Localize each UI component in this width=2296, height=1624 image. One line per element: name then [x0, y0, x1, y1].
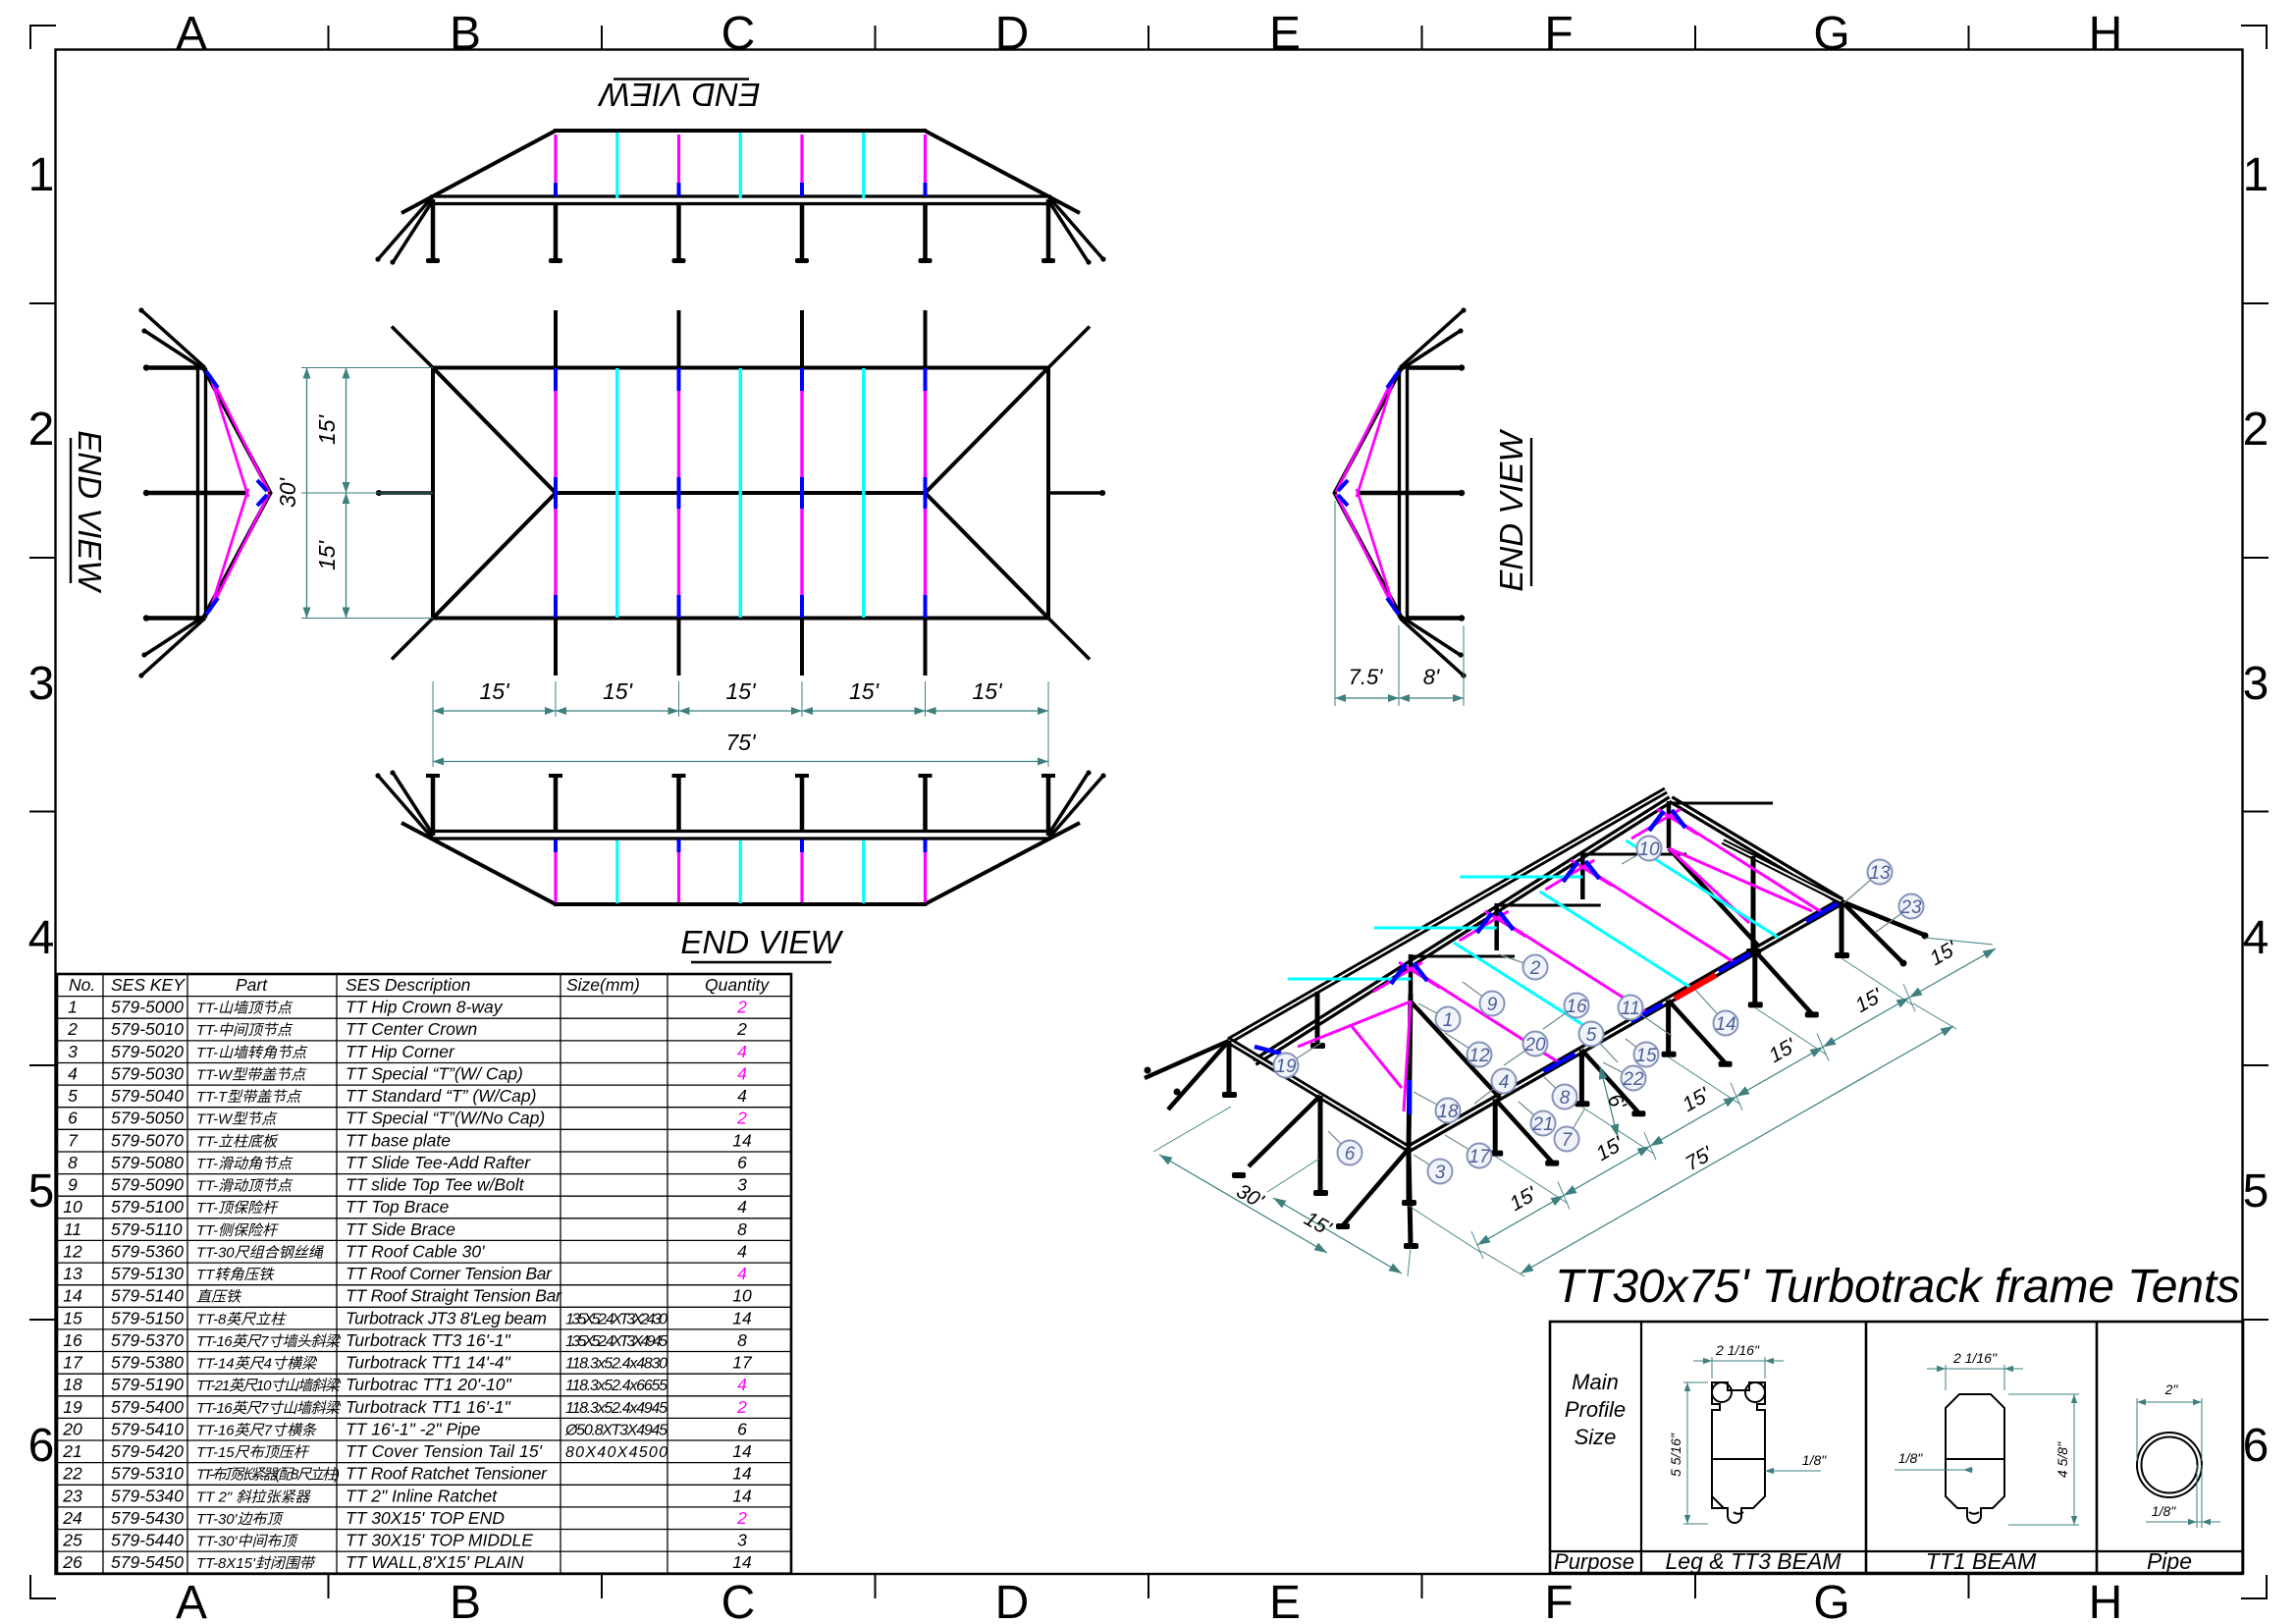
- svg-text:579-5340: 579-5340: [111, 1486, 184, 1505]
- svg-text:9: 9: [1487, 995, 1498, 1015]
- svg-text:TT Slide Tee-Add Rafter: TT Slide Tee-Add Rafter: [346, 1153, 531, 1172]
- svg-text:2 1/16": 2 1/16": [1952, 1350, 1998, 1366]
- svg-text:15': 15': [314, 413, 340, 445]
- svg-text:579-5090: 579-5090: [111, 1175, 184, 1195]
- svg-text:No.: No.: [69, 975, 95, 995]
- svg-text:579-5190: 579-5190: [111, 1375, 184, 1394]
- svg-text:80X40X4500: 80X40X4500: [565, 1444, 667, 1461]
- svg-text:18: 18: [1437, 1102, 1459, 1122]
- svg-text:Pipe: Pipe: [2147, 1548, 2192, 1574]
- svg-text:END VIEW: END VIEW: [72, 430, 108, 593]
- svg-text:Purpose: Purpose: [1554, 1549, 1634, 1574]
- svg-text:5: 5: [28, 1165, 55, 1218]
- svg-text:15': 15': [973, 678, 1004, 704]
- svg-text:2: 2: [67, 1019, 78, 1039]
- svg-text:H: H: [2089, 1577, 2123, 1624]
- svg-text:TT Roof Ratchet Tensioner: TT Roof Ratchet Tensioner: [346, 1464, 548, 1484]
- svg-text:118.3x52.4x4830: 118.3x52.4x4830: [565, 1356, 667, 1373]
- svg-text:17: 17: [1468, 1147, 1491, 1167]
- svg-text:4: 4: [737, 1042, 747, 1061]
- svg-text:TT-侧保险杆: TT-侧保险杆: [196, 1222, 279, 1239]
- svg-text:TT-30'边布顶: TT-30'边布顶: [196, 1511, 284, 1528]
- svg-text:15': 15': [726, 678, 758, 704]
- svg-text:TT Roof Straight Tension Bar: TT Roof Straight Tension Bar: [346, 1286, 562, 1306]
- svg-text:1: 1: [1443, 1010, 1454, 1031]
- svg-text:3: 3: [737, 1175, 747, 1195]
- svg-text:579-5080: 579-5080: [111, 1153, 184, 1172]
- svg-text:16: 16: [1566, 997, 1587, 1017]
- svg-text:21: 21: [1531, 1114, 1553, 1135]
- svg-text:14: 14: [732, 1552, 752, 1572]
- svg-text:A: A: [176, 8, 207, 60]
- svg-text:579-5010: 579-5010: [111, 1019, 184, 1039]
- svg-text:12: 12: [1468, 1046, 1490, 1066]
- svg-text:2: 2: [736, 1508, 747, 1528]
- svg-text:5 5/16": 5 5/16": [1668, 1433, 1683, 1477]
- svg-text:Quantity: Quantity: [705, 975, 770, 995]
- svg-text:TT-顶保险杆: TT-顶保险杆: [196, 1200, 279, 1217]
- svg-text:9: 9: [68, 1175, 78, 1195]
- svg-text:2: 2: [2243, 404, 2269, 456]
- svg-text:26: 26: [62, 1552, 82, 1572]
- svg-text:TT Special “T”(W/ Cap): TT Special “T”(W/ Cap): [346, 1064, 523, 1084]
- svg-text:4: 4: [737, 1197, 747, 1217]
- svg-text:579-5030: 579-5030: [111, 1064, 184, 1084]
- svg-text:579-5140: 579-5140: [111, 1286, 184, 1306]
- svg-text:4: 4: [737, 1241, 747, 1261]
- svg-text:4: 4: [68, 1064, 78, 1084]
- svg-text:6: 6: [737, 1153, 747, 1172]
- svg-text:Part: Part: [236, 975, 268, 995]
- svg-text:TT转角压铁: TT转角压铁: [196, 1267, 275, 1283]
- svg-text:3: 3: [1435, 1163, 1446, 1183]
- svg-text:TT-16英尺7寸横条: TT-16英尺7寸横条: [196, 1422, 317, 1438]
- svg-text:14: 14: [732, 1486, 752, 1505]
- svg-text:7.5': 7.5': [1349, 665, 1384, 689]
- svg-text:TT-立柱底板: TT-立柱底板: [196, 1133, 279, 1150]
- svg-text:2: 2: [736, 1019, 747, 1039]
- svg-text:118.3x52.4x6655: 118.3x52.4x6655: [565, 1378, 667, 1394]
- svg-text:TT-T型带盖节点: TT-T型带盖节点: [196, 1089, 302, 1106]
- svg-text:5: 5: [1586, 1025, 1597, 1046]
- svg-text:TT 16'-1" -2" Pipe: TT 16'-1" -2" Pipe: [346, 1419, 481, 1438]
- svg-text:5: 5: [2243, 1165, 2269, 1218]
- svg-text:13: 13: [1869, 863, 1891, 884]
- svg-text:21: 21: [62, 1441, 81, 1461]
- svg-text:TT-滑动顶节点: TT-滑动顶节点: [196, 1178, 294, 1195]
- svg-text:1/8": 1/8": [1898, 1450, 1923, 1466]
- svg-text:6: 6: [68, 1109, 78, 1128]
- svg-text:Turbotrack JT3 8'Leg beam: Turbotrack JT3 8'Leg beam: [346, 1308, 547, 1327]
- svg-text:4: 4: [1499, 1072, 1510, 1093]
- svg-text:579-5130: 579-5130: [111, 1264, 184, 1283]
- svg-text:TT-16英尺7寸墙头斜梁: TT-16英尺7寸墙头斜梁: [196, 1333, 342, 1350]
- svg-text:11: 11: [64, 1219, 81, 1239]
- svg-text:TT30x75' Turbotrack frame Tent: TT30x75' Turbotrack frame Tents: [1555, 1261, 2240, 1313]
- svg-text:TT 30X15' TOP MIDDLE: TT 30X15' TOP MIDDLE: [346, 1531, 533, 1550]
- svg-text:15: 15: [1635, 1046, 1657, 1066]
- svg-text:END VIEW: END VIEW: [598, 77, 761, 113]
- svg-text:15': 15': [849, 678, 881, 704]
- svg-text:17: 17: [732, 1353, 753, 1373]
- svg-text:TT-8X15'封闭围带: TT-8X15'封闭围带: [196, 1555, 316, 1572]
- svg-text:TT Top Brace: TT Top Brace: [346, 1197, 450, 1217]
- svg-text:2: 2: [1529, 958, 1541, 979]
- svg-text:TT-滑动角节点: TT-滑动角节点: [196, 1156, 294, 1172]
- svg-text:10: 10: [63, 1197, 82, 1217]
- svg-text:8: 8: [737, 1330, 747, 1350]
- svg-text:4: 4: [737, 1375, 747, 1394]
- svg-text:2 1/16": 2 1/16": [1715, 1342, 1760, 1358]
- svg-text:TT Standard “T” (W/Cap): TT Standard “T” (W/Cap): [346, 1086, 536, 1106]
- svg-text:15: 15: [63, 1308, 82, 1327]
- svg-text:15': 15': [603, 678, 634, 704]
- svg-text:7: 7: [1562, 1130, 1574, 1151]
- svg-text:579-5420: 579-5420: [111, 1441, 184, 1461]
- svg-text:A: A: [176, 1577, 207, 1624]
- svg-text:3: 3: [737, 1531, 747, 1550]
- svg-text:135X52.4XT3X4945: 135X52.4XT3X4945: [565, 1333, 667, 1350]
- svg-text:TT-中间顶节点: TT-中间顶节点: [196, 1022, 294, 1039]
- svg-text:2: 2: [736, 1109, 747, 1128]
- svg-text:END VIEW: END VIEW: [1493, 429, 1529, 592]
- svg-text:579-5040: 579-5040: [111, 1086, 184, 1106]
- svg-text:SES Description: SES Description: [346, 975, 470, 995]
- svg-text:118.3x52.4x4945: 118.3x52.4x4945: [565, 1400, 667, 1417]
- svg-text:14: 14: [732, 1308, 752, 1327]
- svg-text:579-5410: 579-5410: [111, 1419, 184, 1438]
- svg-text:1: 1: [2243, 149, 2269, 201]
- svg-text:23: 23: [62, 1486, 82, 1505]
- svg-text:3: 3: [2243, 658, 2269, 710]
- svg-text:6: 6: [28, 1420, 55, 1472]
- svg-text:END VIEW: END VIEW: [680, 924, 843, 960]
- svg-text:TT-15尺布顶压杆: TT-15尺布顶压杆: [196, 1444, 310, 1461]
- svg-text:14: 14: [732, 1464, 752, 1484]
- svg-text:30': 30': [275, 476, 300, 508]
- svg-text:12: 12: [63, 1241, 82, 1261]
- svg-text:TT slide Top Tee w/Bolt: TT slide Top Tee w/Bolt: [346, 1175, 525, 1195]
- svg-text:16: 16: [63, 1330, 82, 1350]
- svg-text:TT-30尺组合钢丝绳: TT-30尺组合钢丝绳: [196, 1244, 325, 1261]
- svg-text:14: 14: [1715, 1014, 1735, 1035]
- svg-text:TT base plate: TT base plate: [346, 1130, 451, 1150]
- svg-text:2": 2": [2164, 1381, 2179, 1397]
- svg-text:4: 4: [737, 1264, 747, 1283]
- svg-text:135X52.4XT3X2430: 135X52.4XT3X2430: [565, 1311, 667, 1327]
- svg-text:17: 17: [63, 1353, 83, 1373]
- svg-text:Leg & TT3 BEAM: Leg & TT3 BEAM: [1666, 1548, 1842, 1574]
- svg-text:14: 14: [732, 1441, 752, 1461]
- svg-text:11: 11: [1621, 999, 1640, 1019]
- svg-text:Main: Main: [1572, 1370, 1619, 1394]
- svg-text:3: 3: [28, 658, 55, 710]
- svg-text:2: 2: [28, 404, 55, 456]
- svg-text:Ø50.8XT3X4945: Ø50.8XT3X4945: [564, 1422, 667, 1438]
- svg-text:6: 6: [737, 1419, 747, 1438]
- svg-text:B: B: [450, 8, 481, 60]
- svg-text:6: 6: [2243, 1420, 2269, 1472]
- svg-text:75': 75': [726, 730, 758, 755]
- svg-text:TT-山墙顶节点: TT-山墙顶节点: [196, 1001, 294, 1017]
- svg-text:Turbotrack TT1 14'-4": Turbotrack TT1 14'-4": [346, 1353, 511, 1373]
- svg-text:TT-30'中间布顶: TT-30'中间布顶: [196, 1534, 298, 1550]
- svg-text:F: F: [1544, 1577, 1573, 1624]
- svg-text:SES KEY: SES KEY: [111, 975, 186, 995]
- svg-text:20: 20: [1523, 1035, 1546, 1056]
- svg-text:579-5020: 579-5020: [111, 1042, 184, 1061]
- svg-text:579-5100: 579-5100: [111, 1197, 184, 1217]
- svg-text:4: 4: [737, 1064, 747, 1084]
- svg-text:579-5110: 579-5110: [111, 1219, 183, 1239]
- svg-text:14: 14: [63, 1286, 82, 1306]
- svg-text:6: 6: [1345, 1144, 1356, 1164]
- svg-text:8: 8: [68, 1153, 78, 1172]
- svg-text:Profile: Profile: [1565, 1397, 1626, 1422]
- svg-text:TT Roof Corner Tension Bar: TT Roof Corner Tension Bar: [346, 1264, 553, 1283]
- svg-text:TT-21英尺10寸山墙斜梁: TT-21英尺10寸山墙斜梁: [196, 1378, 342, 1394]
- svg-text:3: 3: [68, 1042, 78, 1061]
- svg-text:1/8": 1/8": [2152, 1503, 2176, 1519]
- svg-text:TT Hip Crown 8-way: TT Hip Crown 8-way: [346, 998, 504, 1017]
- svg-text:10: 10: [1638, 839, 1660, 860]
- svg-text:G: G: [1813, 8, 1849, 60]
- svg-text:579-5380: 579-5380: [111, 1353, 184, 1373]
- svg-text:Turbotrack TT3 16'-1": Turbotrack TT3 16'-1": [346, 1330, 511, 1350]
- svg-text:19: 19: [63, 1397, 82, 1417]
- svg-text:D: D: [995, 8, 1030, 60]
- svg-text:25: 25: [62, 1531, 82, 1550]
- svg-text:TT-16英尺7寸山墙斜梁: TT-16英尺7寸山墙斜梁: [196, 1400, 342, 1417]
- svg-text:TT 2" 斜拉张紧器: TT 2" 斜拉张紧器: [196, 1489, 311, 1505]
- svg-text:TT-山墙转角节点: TT-山墙转角节点: [196, 1045, 308, 1061]
- svg-text:18: 18: [63, 1375, 82, 1394]
- svg-text:TT Side Brace: TT Side Brace: [346, 1219, 455, 1239]
- svg-text:TT-W型节点: TT-W型节点: [196, 1111, 278, 1128]
- svg-text:23: 23: [1899, 897, 1922, 918]
- svg-text:5: 5: [68, 1086, 78, 1106]
- svg-text:1: 1: [28, 149, 55, 201]
- svg-text:4: 4: [2243, 912, 2269, 964]
- svg-text:Turbotrac TT1 20'-10": Turbotrac TT1 20'-10": [346, 1375, 512, 1394]
- svg-text:14: 14: [732, 1130, 752, 1150]
- svg-text:TT WALL,8'X15' PLAIN: TT WALL,8'X15' PLAIN: [346, 1552, 524, 1572]
- svg-text:579-5370: 579-5370: [111, 1330, 184, 1350]
- svg-text:TT-W型带盖节点: TT-W型带盖节点: [196, 1067, 307, 1084]
- svg-text:D: D: [995, 1577, 1030, 1624]
- svg-text:C: C: [721, 8, 756, 60]
- svg-text:2: 2: [736, 1397, 747, 1417]
- svg-text:TT-14英尺4寸横梁: TT-14英尺4寸横梁: [196, 1356, 318, 1373]
- svg-text:H: H: [2089, 8, 2123, 60]
- svg-text:579-5430: 579-5430: [111, 1508, 184, 1528]
- svg-text:B: B: [450, 1577, 481, 1624]
- svg-text:TT Special “T”(W/No Cap): TT Special “T”(W/No Cap): [346, 1109, 545, 1128]
- svg-text:19: 19: [1275, 1056, 1297, 1077]
- svg-text:22: 22: [62, 1464, 82, 1484]
- svg-text:8: 8: [1560, 1088, 1571, 1109]
- svg-text:579-5400: 579-5400: [111, 1397, 184, 1417]
- svg-text:直压铁: 直压铁: [196, 1289, 242, 1306]
- svg-text:2: 2: [736, 998, 747, 1017]
- svg-text:7: 7: [68, 1130, 79, 1150]
- svg-text:TT Hip Corner: TT Hip Corner: [346, 1042, 455, 1061]
- svg-text:G: G: [1813, 1577, 1849, 1624]
- svg-text:579-5000: 579-5000: [111, 998, 184, 1017]
- svg-text:8': 8': [1423, 665, 1440, 689]
- svg-text:579-5070: 579-5070: [111, 1130, 184, 1150]
- svg-text:4 5/8": 4 5/8": [2055, 1441, 2070, 1478]
- svg-text:4: 4: [28, 912, 55, 964]
- svg-text:579-5310: 579-5310: [111, 1464, 184, 1484]
- svg-text:TT1 BEAM: TT1 BEAM: [1926, 1548, 2037, 1574]
- svg-text:10: 10: [732, 1286, 752, 1306]
- svg-text:579-5150: 579-5150: [111, 1308, 184, 1327]
- svg-text:24: 24: [62, 1508, 82, 1528]
- svg-text:8: 8: [737, 1219, 747, 1239]
- svg-text:TT Center Crown: TT Center Crown: [346, 1019, 477, 1039]
- svg-text:F: F: [1544, 8, 1573, 60]
- svg-text:Size(mm): Size(mm): [566, 975, 640, 995]
- svg-text:1: 1: [68, 998, 78, 1017]
- svg-text:22: 22: [1622, 1069, 1644, 1090]
- svg-text:E: E: [1269, 8, 1301, 60]
- svg-text:TT-布顶张紧器(配8尺立柱): TT-布顶张紧器(配8尺立柱): [196, 1467, 340, 1484]
- svg-text:579-5440: 579-5440: [111, 1531, 184, 1550]
- svg-text:Turbotrack TT1 16'-1": Turbotrack TT1 16'-1": [346, 1397, 511, 1417]
- svg-text:E: E: [1269, 1577, 1301, 1624]
- svg-text:TT Cover Tension Tail 15': TT Cover Tension Tail 15': [346, 1441, 543, 1461]
- svg-text:13: 13: [63, 1264, 82, 1283]
- svg-text:20: 20: [62, 1419, 82, 1438]
- svg-text:4: 4: [737, 1086, 747, 1106]
- svg-text:15': 15': [314, 539, 340, 570]
- svg-text:1/8": 1/8": [1802, 1452, 1827, 1468]
- svg-text:TT Roof Cable 30': TT Roof Cable 30': [346, 1241, 485, 1261]
- svg-text:TT 30X15' TOP END: TT 30X15' TOP END: [346, 1508, 505, 1528]
- svg-text:TT 2" Inline Ratchet: TT 2" Inline Ratchet: [346, 1486, 498, 1505]
- svg-text:579-5360: 579-5360: [111, 1241, 184, 1261]
- svg-text:TT-8英尺立柱: TT-8英尺立柱: [196, 1311, 287, 1327]
- svg-text:579-5450: 579-5450: [111, 1552, 184, 1572]
- svg-text:C: C: [721, 1577, 756, 1624]
- svg-text:Size: Size: [1575, 1425, 1617, 1449]
- svg-text:579-5050: 579-5050: [111, 1109, 184, 1128]
- svg-text:15': 15': [480, 678, 511, 704]
